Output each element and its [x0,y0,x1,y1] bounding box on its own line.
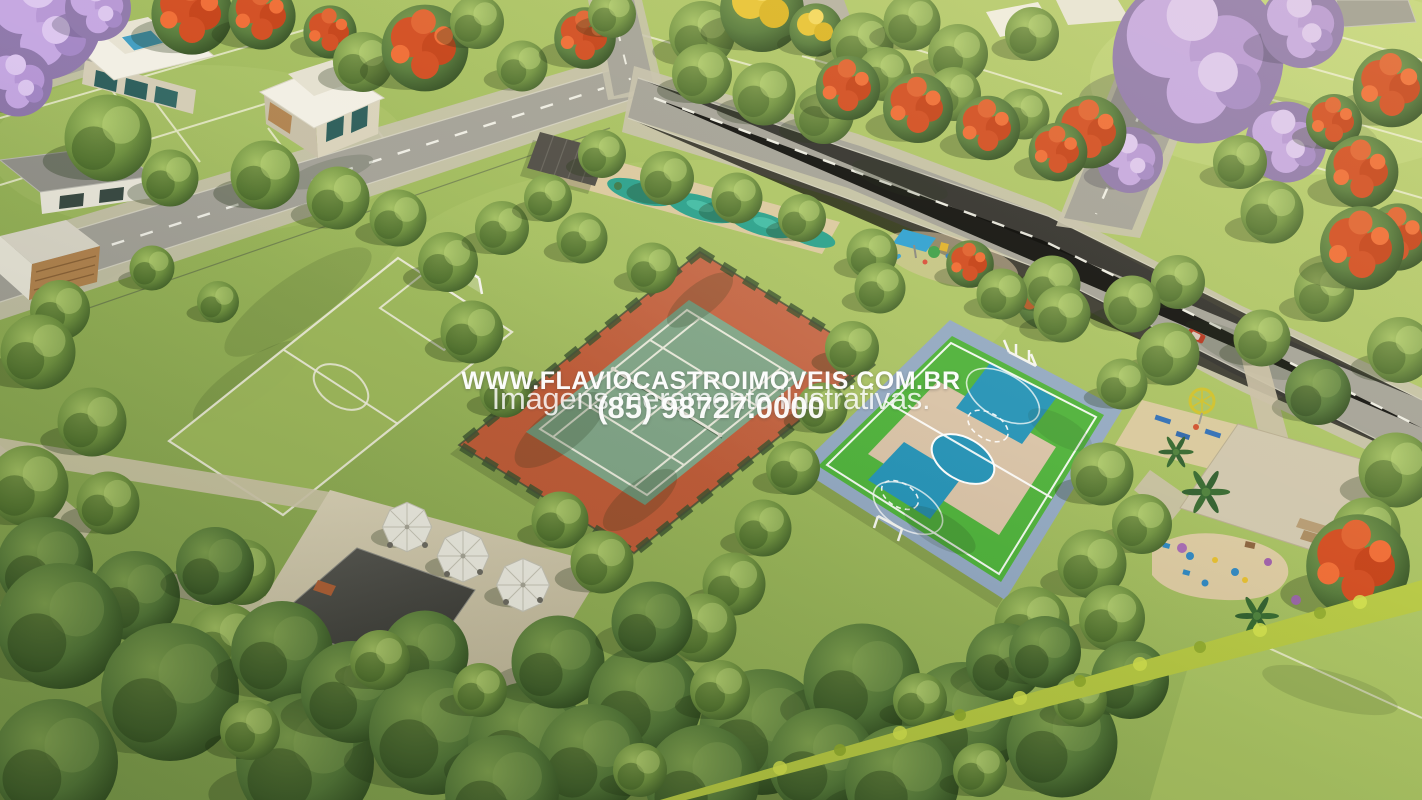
aerial-render-image: WWW.FLAVIOCASTROIMOVEIS.COM.BR Imagens m… [0,0,1422,800]
vignette-overlay [0,0,1422,800]
condominium-scene [0,0,1422,800]
